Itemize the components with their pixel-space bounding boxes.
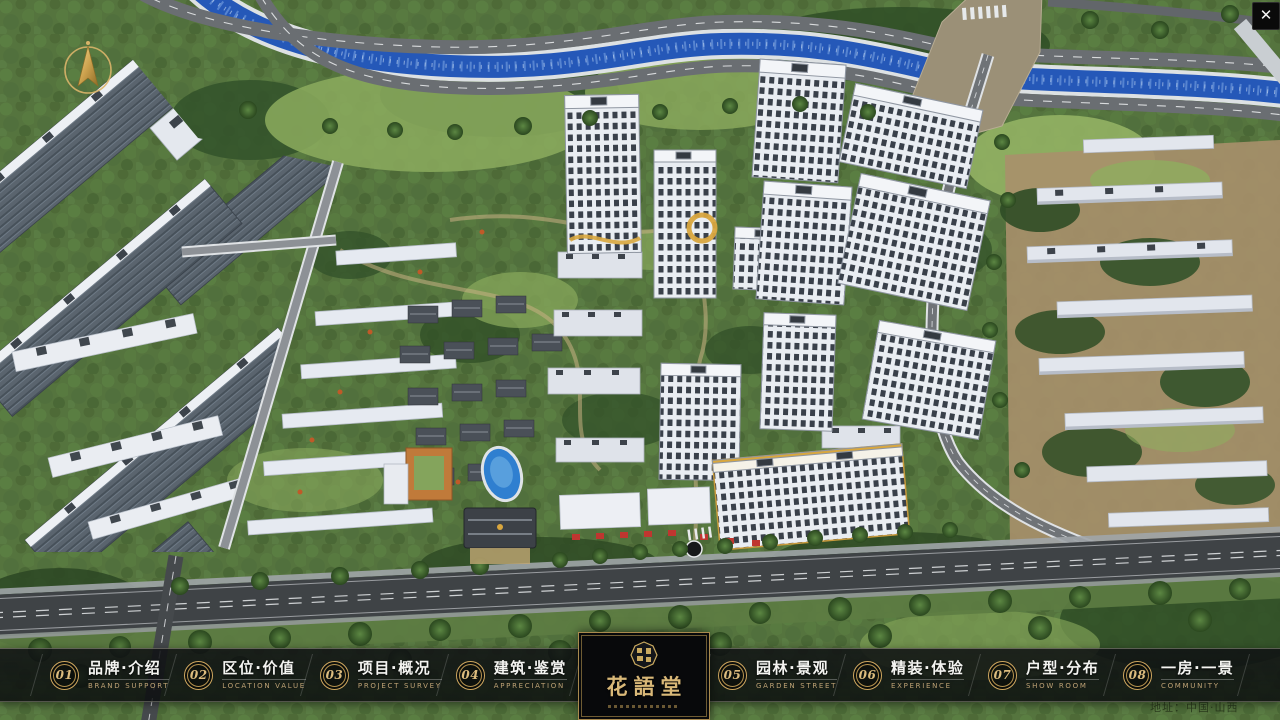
nav-item-floorplan-distribution[interactable]: 07 户型·分布 SHOW ROOM [974,649,1109,701]
nav-label-en: APPRECIATION [494,679,567,690]
nav-group-left: 01 品牌·介绍 BRAND SUPPORT 02 区位·价值 LOCATION… [36,649,576,701]
nav-label-zh: 户型·分布 [1026,660,1099,677]
nav-label-zh: 建筑·鉴赏 [494,660,567,677]
nav-label-en: COMMUNITY [1161,679,1234,690]
nav-label-zh: 品牌·介绍 [88,660,169,677]
nav-label-zh: 项目·概况 [358,660,442,677]
nav-label-en: LOCATION VALUE [222,679,306,690]
close-button[interactable]: ✕ [1252,2,1280,30]
nav-label-en: PROJECT SURVEY [358,679,442,690]
nav-number-badge: 03 [320,661,349,690]
nav-item-garden-landscape[interactable]: 05 园林·景观 GARDEN STREET [704,649,839,701]
nav-item-location-value[interactable]: 02 区位·价值 LOCATION VALUE [170,649,306,701]
logo-subtitle-text [608,705,680,708]
nav-item-interior-experience[interactable]: 06 精装·体验 EXPERIENCE [839,649,974,701]
nav-label-en: SHOW ROOM [1026,679,1099,690]
presentation-window: ✕ 01 品牌·介绍 BRAND SUPPORT 02 区位·价值 LOCATI… [0,0,1280,720]
nav-label-zh: 园林·景观 [756,660,837,677]
nav-number-badge: 06 [853,661,882,690]
nav-number-badge: 05 [718,661,747,690]
nav-number-badge: 08 [1123,661,1152,690]
project-logo-button[interactable]: 花語堂 [578,632,710,720]
nav-label-zh: 一房·一景 [1161,660,1234,677]
masterplan-3d-render[interactable] [0,0,1280,720]
entrance-pavilion [464,508,536,564]
nav-group-right: 05 园林·景观 GARDEN STREET 06 精装·体验 EXPERIEN… [704,649,1244,701]
nav-item-project-survey[interactable]: 03 项目·概况 PROJECT SURVEY [306,649,442,701]
project-title: 花語堂 [607,671,688,701]
nav-label-en: EXPERIENCE [891,679,964,690]
entrance-roundabout [686,541,702,557]
nav-label-en: GARDEN STREET [756,679,837,690]
project-seal-icon [630,641,658,669]
nav-number-badge: 02 [184,661,213,690]
nav-item-room-view[interactable]: 08 一房·一景 COMMUNITY [1109,649,1244,701]
nav-label-en: BRAND SUPPORT [88,679,169,690]
compass-north-icon [56,34,120,98]
nav-item-brand-intro[interactable]: 01 品牌·介绍 BRAND SUPPORT [36,649,170,701]
nav-label-zh: 精装·体验 [891,660,964,677]
nav-number-badge: 01 [50,661,79,690]
nav-item-architecture[interactable]: 04 建筑·鉴赏 APPRECIATION [442,649,576,701]
nav-number-badge: 04 [456,661,485,690]
nav-label-zh: 区位·价值 [222,660,306,677]
nav-number-badge: 07 [988,661,1017,690]
